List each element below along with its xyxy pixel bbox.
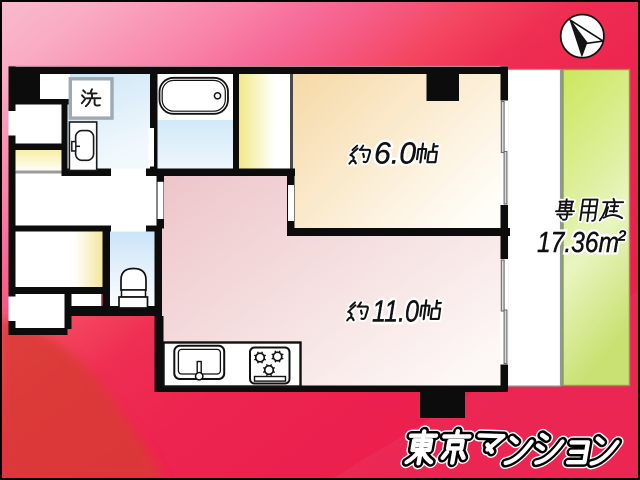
svg-text:2: 2 [617,229,626,245]
svg-text:11.0: 11.0 [372,294,419,329]
svg-text:6.0: 6.0 [374,136,416,171]
svg-text:17.36m: 17.36m [537,227,619,259]
